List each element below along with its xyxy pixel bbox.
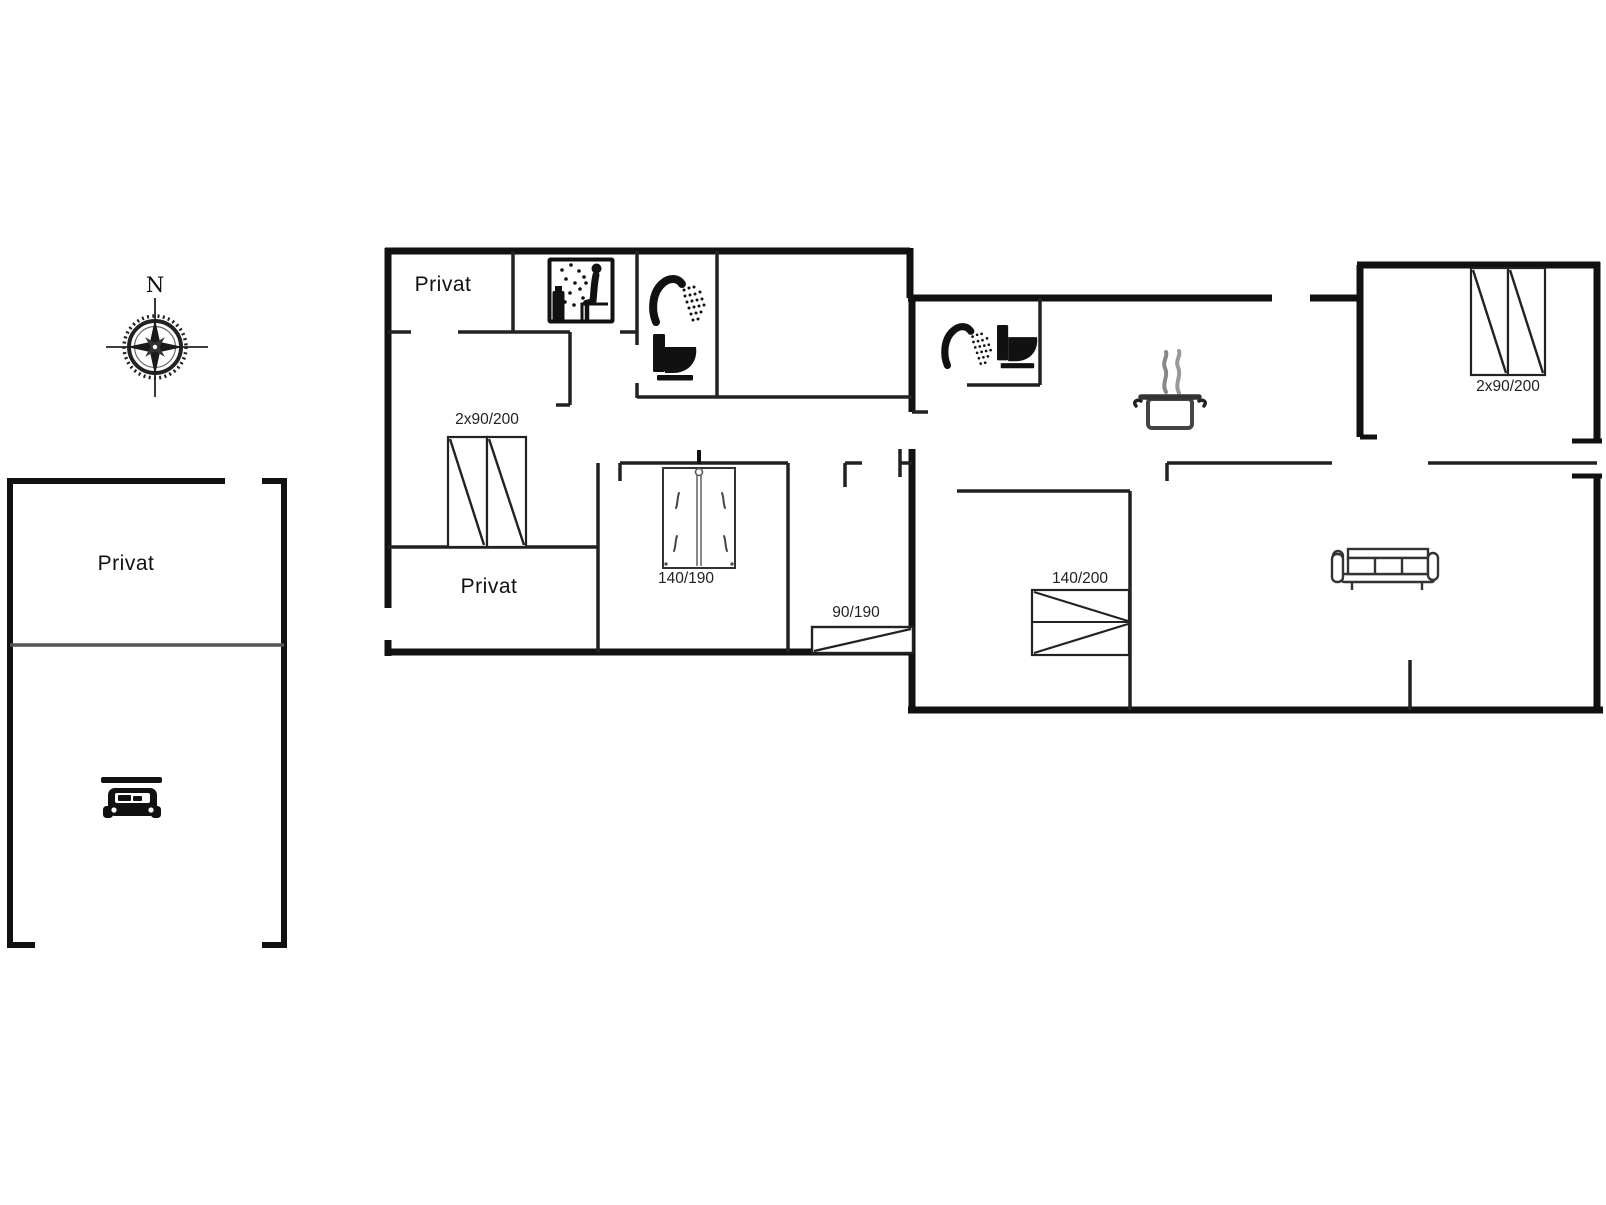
room-label-top-left: Privat	[415, 273, 472, 296]
carport-walls	[8, 481, 287, 945]
shower-icon-2	[945, 327, 991, 366]
bed-right-double: 2x90/200	[1471, 268, 1545, 395]
bed-140-190: 140/190	[658, 450, 735, 587]
bed-dim-label: 140/190	[658, 570, 714, 587]
compass-north-label: N	[146, 273, 164, 297]
bed-90-190: 90/190	[812, 604, 913, 653]
bed-dim-label: 140/200	[1052, 570, 1108, 587]
sofa-icon	[1332, 549, 1438, 590]
bed-dim-label: 2x90/200	[1476, 378, 1540, 395]
carport-label: Privat	[98, 552, 155, 575]
bed-140-200: 140/200	[1032, 570, 1129, 655]
bed-dim-label: 2x90/200	[455, 411, 519, 428]
steam	[1164, 352, 1166, 392]
carport: Privat	[8, 478, 287, 948]
bed-left-double: 2x90/200	[448, 411, 526, 547]
car-icon	[101, 777, 162, 818]
compass-rose-icon: N	[106, 273, 208, 397]
shower-icon	[653, 279, 704, 322]
toilet-icon-2	[997, 325, 1037, 368]
bed-dim-label: 90/190	[832, 604, 880, 621]
floor-plan-drawing: N Privat Privat	[0, 0, 1606, 1205]
room-label-bottom-left: Privat	[461, 575, 518, 598]
floor-plan-page: N Privat Privat	[0, 0, 1606, 1205]
toilet-icon	[653, 334, 696, 381]
cooking-pot-icon	[1135, 351, 1205, 428]
sauna-icon	[550, 260, 613, 322]
